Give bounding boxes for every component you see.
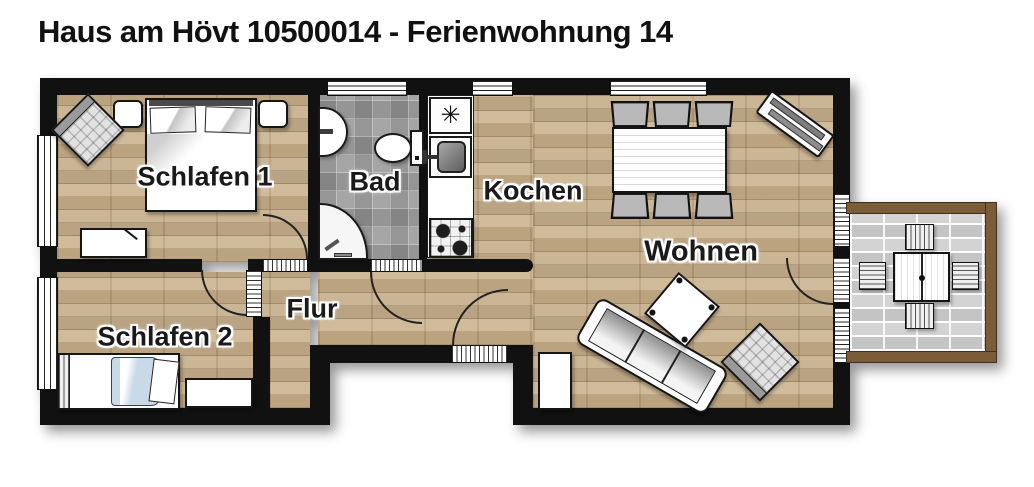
wall-bottom-left [40,408,330,425]
blanket-fold [120,358,138,405]
door-leaf-schlafen2 [246,270,262,317]
bed-headboard [59,355,70,408]
window-top-kochen [472,80,513,96]
bed-headboard [149,100,253,106]
shower-drain [334,253,352,257]
terrace-chair [952,262,979,290]
terrace-table [893,252,950,302]
fridge-freezer: ✳ [429,97,472,134]
freezer-asterisk-icon: ✳ [440,101,460,130]
terrace-chair [905,303,934,329]
stove [429,218,473,258]
terrace-chair [905,224,934,250]
room-label-bad: Bad [349,167,400,198]
dining-table [612,127,727,193]
dining-chair [611,193,650,219]
wall-bottom-right [513,408,850,425]
toilet-flush-button [415,156,419,160]
sink-basin [437,141,466,173]
cabinet [538,352,572,410]
wall-mid-kitchen [423,259,533,272]
kitchen-sink [429,136,472,178]
window-left-schlafen2 [37,277,58,390]
room-label-flur: Flur [287,294,338,325]
dresser-item [123,228,138,240]
wall-bad-kochen [419,95,427,272]
room-label-kochen: Kochen [483,176,582,207]
floor-plan: ✳ Schla [0,0,1034,487]
single-bed [57,353,180,410]
pillow [205,106,252,134]
wall-mid-a [40,259,202,272]
window-left-schlafen1 [37,135,58,247]
terrace-chair [859,262,886,290]
double-bed [145,98,257,212]
window-top-bad [327,80,407,96]
dresser [80,228,147,258]
terrace-rail-right [985,202,997,363]
dresser [185,378,253,408]
wall-top [40,78,850,95]
wall-right [833,78,850,425]
door-sill-schlafen1 [262,259,308,272]
faucet [320,129,333,134]
terrace-table-center-dot [919,275,925,281]
dining-chair [653,101,692,127]
dining-chair [611,101,650,127]
terrace-door-sill [833,257,850,303]
pillow [148,359,179,405]
wall-schlafen2-flur [253,317,270,408]
dining-chair [653,193,692,219]
dining-chair [695,101,734,127]
faucet-handle [422,150,427,164]
room-label-schlafen1: Schlafen 1 [137,162,272,193]
terrace-rail-bottom [846,351,997,363]
room-label-wohnen: Wohnen [644,236,758,269]
wall-mid-c [308,259,370,272]
pillow [150,106,197,134]
room-label-schlafen2: Schlafen 2 [97,322,232,353]
nightstand [258,100,288,128]
toilet-bowl [374,133,412,163]
entrance-door-sill [451,345,508,363]
dining-chair [695,193,734,219]
shower-head [324,239,339,251]
window-top-wohnen [610,80,707,96]
door-sill-bad [370,259,423,272]
terrace-rail-top [846,202,997,214]
